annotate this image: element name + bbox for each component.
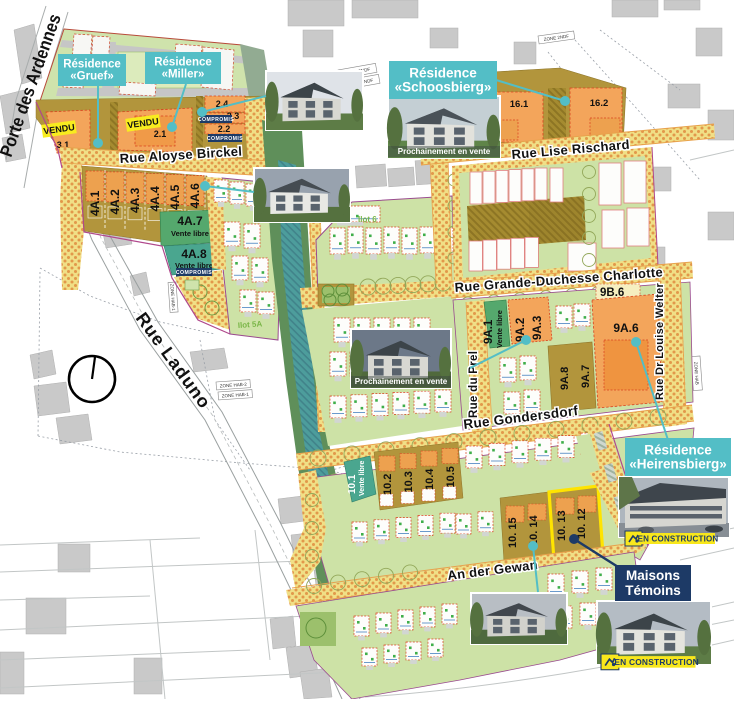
svg-text:10.5: 10.5 <box>445 466 457 487</box>
svg-text:«Schoosbierg»: «Schoosbierg» <box>395 80 492 95</box>
svg-text:16.1: 16.1 <box>510 99 529 110</box>
svg-text:Résidence: Résidence <box>644 443 712 458</box>
svg-text:10.2: 10.2 <box>382 474 394 495</box>
svg-text:Ilot 6: Ilot 6 <box>358 215 377 224</box>
svg-text:«Heirensbierg»: «Heirensbierg» <box>629 457 727 472</box>
svg-text:9B.6: 9B.6 <box>600 287 624 299</box>
svg-text:9A.8: 9A.8 <box>559 367 571 390</box>
svg-text:«Gruef»: «Gruef» <box>70 71 113 83</box>
svg-text:4A.7: 4A.7 <box>177 214 203 228</box>
svg-text:Rue Dr Louise Welter: Rue Dr Louise Welter <box>654 283 666 400</box>
svg-text:Résidence: Résidence <box>154 57 212 69</box>
svg-text:4A.2: 4A.2 <box>108 189 122 215</box>
svg-text:Témoins: Témoins <box>625 583 681 598</box>
svg-text:EN CONSTRUCTION: EN CONSTRUCTION <box>614 657 699 667</box>
svg-text:10. 13: 10. 13 <box>556 510 568 541</box>
svg-text:10.4: 10.4 <box>424 468 436 490</box>
svg-text:4A.5: 4A.5 <box>168 184 182 210</box>
svg-text:10.3: 10.3 <box>403 471 415 492</box>
svg-text:10. 12: 10. 12 <box>576 508 588 539</box>
svg-text:Vente libre: Vente libre <box>495 310 504 348</box>
svg-text:16.2: 16.2 <box>590 98 609 109</box>
svg-text:Maisons: Maisons <box>626 568 680 583</box>
svg-text:2.2: 2.2 <box>218 124 231 134</box>
svg-text:10.1: 10.1 <box>347 474 358 494</box>
svg-text:2.1: 2.1 <box>154 129 167 139</box>
svg-text:4A.4: 4A.4 <box>148 186 162 212</box>
svg-text:4A.8: 4A.8 <box>181 247 207 261</box>
svg-text:Prochainement en vente: Prochainement en vente <box>398 147 491 156</box>
svg-text:Rue du Prel: Rue du Prel <box>468 351 480 418</box>
svg-text:COMPROMIS: COMPROMIS <box>198 117 234 123</box>
svg-text:9A.6: 9A.6 <box>613 321 639 335</box>
svg-text:Ilot 5A: Ilot 5A <box>238 319 263 330</box>
svg-text:Résidence: Résidence <box>409 66 477 81</box>
svg-text:9A.3: 9A.3 <box>532 316 544 340</box>
svg-text:EN CONSTRUCTION: EN CONSTRUCTION <box>638 535 719 544</box>
svg-text:4A.1: 4A.1 <box>88 190 102 216</box>
svg-text:10. 15: 10. 15 <box>507 517 519 548</box>
svg-text:COMPROMIS: COMPROMIS <box>207 136 243 142</box>
svg-text:Prochainement en vente: Prochainement en vente <box>355 377 448 386</box>
svg-text:9A.7: 9A.7 <box>580 365 592 388</box>
svg-text:4A.6: 4A.6 <box>188 183 202 209</box>
svg-text:«Miller»: «Miller» <box>162 69 205 81</box>
svg-text:Vente libre: Vente libre <box>171 229 209 238</box>
svg-text:Résidence: Résidence <box>63 59 121 71</box>
svg-text:9A.1: 9A.1 <box>483 319 495 344</box>
svg-text:4A.3: 4A.3 <box>128 187 142 213</box>
svg-text:COMPROMIS: COMPROMIS <box>176 270 212 276</box>
svg-text:Vente libre: Vente libre <box>359 460 366 496</box>
